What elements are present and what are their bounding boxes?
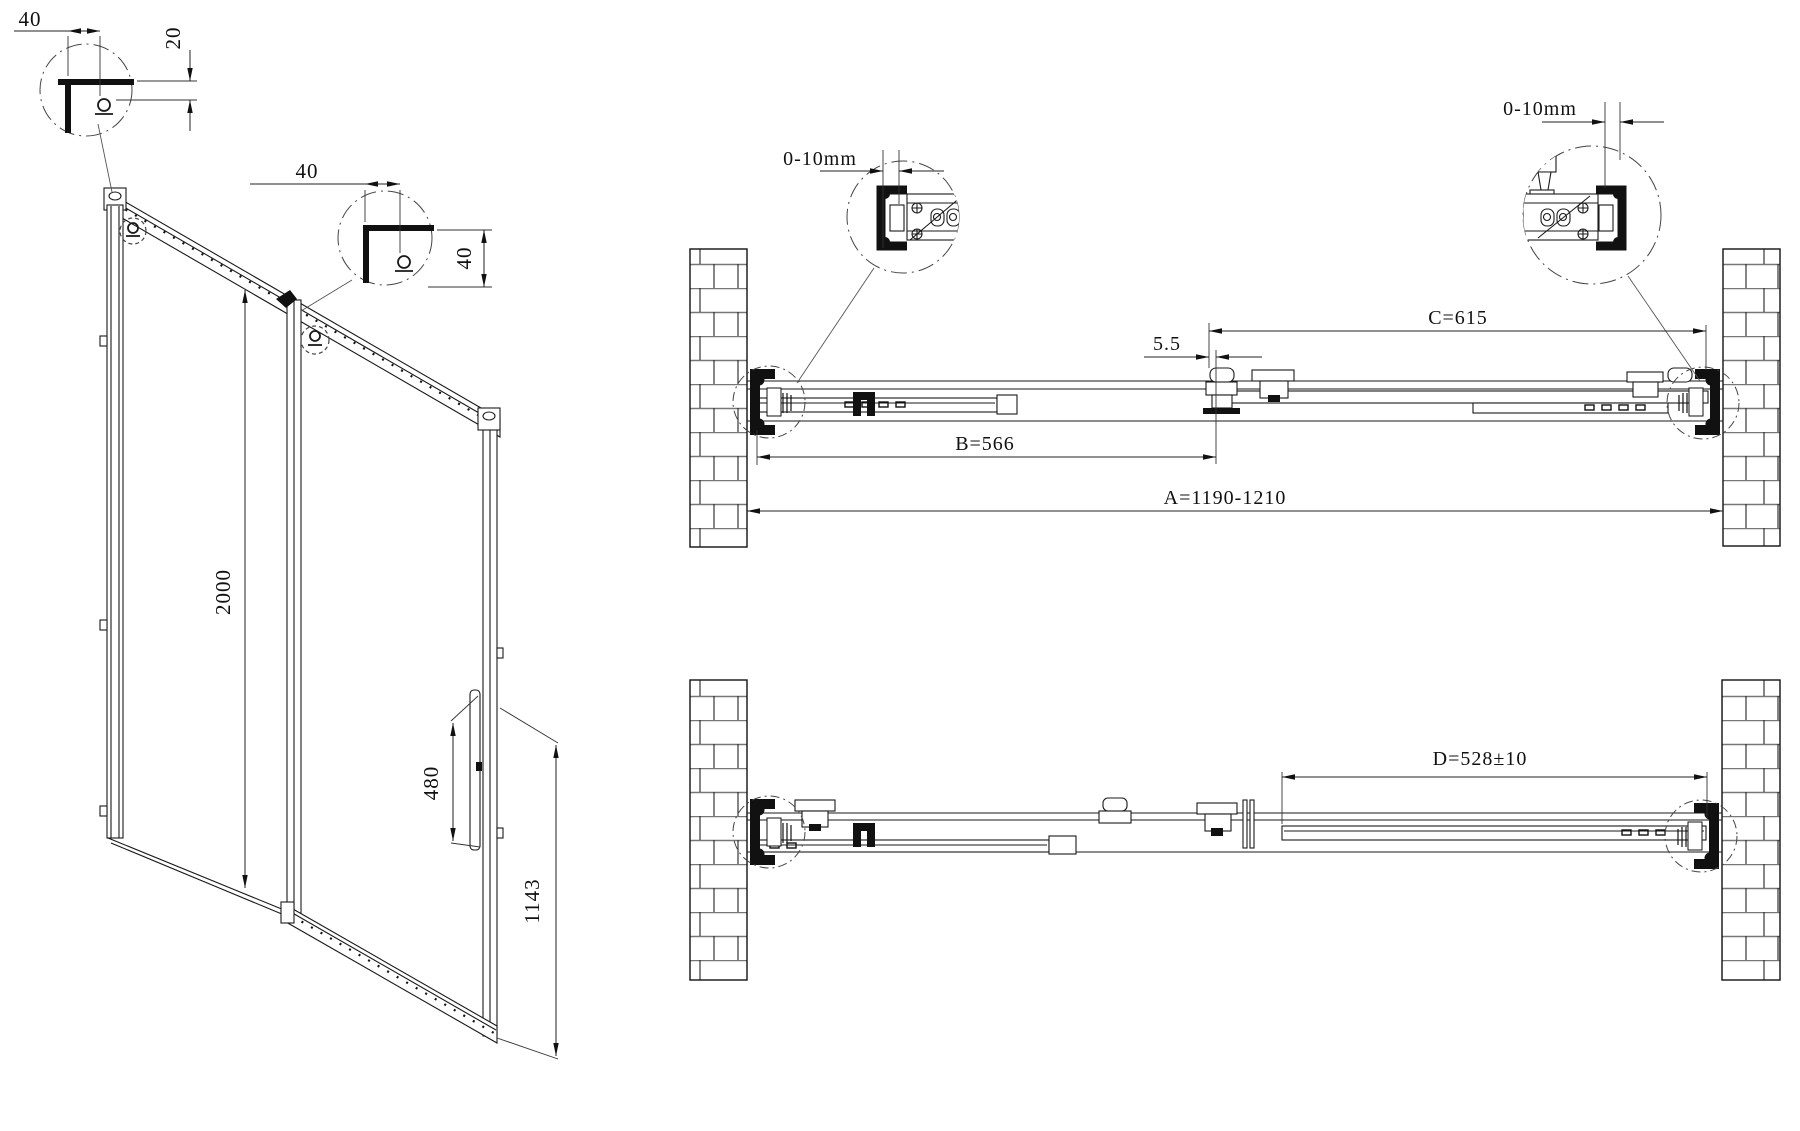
leader-line <box>301 280 352 311</box>
track <box>747 798 1722 854</box>
leader-line <box>797 268 874 383</box>
wall-detail-left: 0-10mm <box>783 148 976 383</box>
wall-bracket-tab <box>100 336 107 346</box>
dim-label: 0-10mm <box>1503 98 1577 120</box>
leader-line <box>98 124 112 192</box>
detail-circle-corner-mid: 40 40 <box>250 159 492 311</box>
spacer <box>1250 800 1254 848</box>
bumper-stop <box>1203 368 1240 414</box>
glass-clamp <box>1099 798 1131 823</box>
corner-cap-right <box>478 408 500 430</box>
dim-label: 480 <box>419 766 443 801</box>
drawing-sheet: 40 20 40 40 <box>0 0 1800 1131</box>
roller-icon <box>98 99 110 111</box>
dim-label: 5.5 <box>1153 333 1181 355</box>
wall-detail-right: 0-10mm <box>1503 98 1700 381</box>
wall-bracket-tab <box>100 806 107 816</box>
plan-view-bottom: D=528±10 <box>690 680 1780 980</box>
handle-mount <box>476 762 482 771</box>
wall-bracket-tab <box>100 620 107 630</box>
dim-label: A=1190-1210 <box>1164 487 1287 509</box>
left-stile <box>107 205 123 838</box>
leader-line <box>1628 276 1700 381</box>
bottom-rail-end-cap <box>281 902 294 923</box>
dim-label: B=566 <box>955 433 1015 455</box>
bottom-rail <box>286 905 497 1043</box>
wall-left <box>690 680 747 980</box>
dim-a: A=1190-1210 <box>747 487 1723 511</box>
spacer <box>1243 800 1247 848</box>
dim-label: 0-10mm <box>783 148 857 170</box>
fixed-panel <box>757 840 1049 852</box>
wall-bracket-tab <box>497 828 503 838</box>
plan-view-top: 0-10mm <box>690 98 1780 547</box>
dim-label: 1143 <box>520 878 544 923</box>
dim-b: B=566 <box>757 430 1216 465</box>
dim-label: D=528±10 <box>1433 748 1528 770</box>
isometric-view: 40 20 40 40 <box>14 7 558 1059</box>
wall-right <box>1723 249 1780 546</box>
dim-label: 40 <box>296 159 319 183</box>
dim-door-height: 2000 <box>211 290 245 888</box>
fixed-panel-cap <box>1049 836 1076 854</box>
dim-label: 40 <box>452 247 476 270</box>
fixed-panel-cap <box>997 395 1017 414</box>
track <box>747 368 1723 421</box>
dim-c: C=615 <box>1209 307 1706 370</box>
wall-bracket-tab <box>497 648 503 658</box>
roller-icon <box>398 256 410 268</box>
dim-label: 2000 <box>211 569 235 615</box>
sliding-panel <box>1282 826 1706 840</box>
dim-label: 40 <box>19 7 42 31</box>
fixed-panel <box>757 398 997 412</box>
wall-left <box>690 249 747 547</box>
dim-label: 20 <box>161 27 185 50</box>
wall-right <box>1722 680 1780 980</box>
door-frame <box>100 188 503 1043</box>
dim-handle-offset: 1143 <box>497 708 558 1059</box>
dim-label: C=615 <box>1428 307 1488 329</box>
shower-door-technical-drawing: 40 20 40 40 <box>0 0 1800 1131</box>
detail-circle-corner-top: 40 20 <box>14 7 197 192</box>
roller-carriage <box>795 800 835 831</box>
